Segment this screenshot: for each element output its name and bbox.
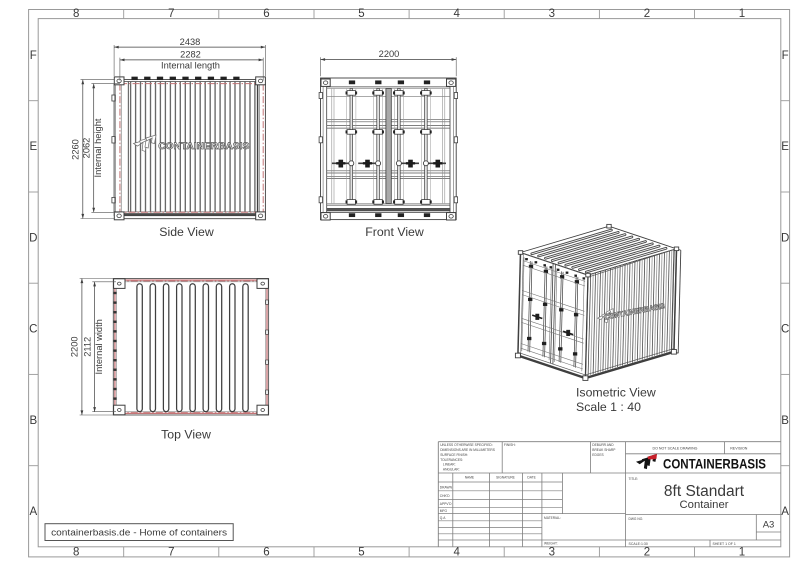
svg-text:Q.A: Q.A <box>440 516 446 520</box>
svg-text:ANGULAR:: ANGULAR: <box>440 467 459 471</box>
svg-text:MFG: MFG <box>440 509 448 513</box>
svg-text:5: 5 <box>358 8 364 20</box>
svg-text:4: 4 <box>453 8 460 20</box>
svg-text:2438: 2438 <box>180 37 201 47</box>
svg-text:D: D <box>29 233 37 245</box>
svg-text:F: F <box>782 50 789 62</box>
svg-text:F: F <box>30 50 37 62</box>
svg-text:D: D <box>781 233 789 245</box>
svg-text:2200: 2200 <box>70 336 80 357</box>
svg-text:WEIGHT:: WEIGHT: <box>544 541 558 545</box>
svg-text:2200: 2200 <box>379 49 400 59</box>
svg-text:3: 3 <box>549 547 555 559</box>
svg-text:1: 1 <box>739 547 745 559</box>
svg-text:8: 8 <box>73 8 79 20</box>
svg-text:Internal height: Internal height <box>93 118 103 177</box>
svg-text:5: 5 <box>358 547 364 559</box>
svg-text:2062: 2062 <box>81 138 91 159</box>
svg-text:E: E <box>29 141 37 153</box>
svg-text:8ft Standart: 8ft Standart <box>664 483 745 500</box>
svg-text:CONTAINERBASIS: CONTAINERBASIS <box>158 141 250 152</box>
svg-text:FINISH:: FINISH: <box>504 443 516 447</box>
svg-text:DO NOT SCALE DRAWING: DO NOT SCALE DRAWING <box>653 447 698 451</box>
svg-text:DRAWN: DRAWN <box>440 485 453 489</box>
svg-text:E: E <box>781 141 789 153</box>
svg-text:6: 6 <box>263 547 269 559</box>
svg-text:SCALE:1:30: SCALE:1:30 <box>629 542 648 546</box>
svg-text:3: 3 <box>549 8 555 20</box>
svg-text:1: 1 <box>739 8 745 20</box>
svg-text:2: 2 <box>644 8 650 20</box>
svg-text:8: 8 <box>73 547 79 559</box>
svg-text:Top View: Top View <box>161 428 211 442</box>
svg-text:A: A <box>781 506 789 518</box>
svg-text:2: 2 <box>644 547 650 559</box>
svg-text:TOLERANCES:: TOLERANCES: <box>440 458 463 462</box>
svg-text:containerbasis.de - Home of co: containerbasis.de - Home of containers <box>51 527 228 537</box>
svg-text:Scale 1 : 40: Scale 1 : 40 <box>576 400 641 414</box>
svg-text:Side View: Side View <box>159 225 214 239</box>
svg-text:NAME: NAME <box>465 476 475 480</box>
svg-text:LINEAR:: LINEAR: <box>440 463 455 467</box>
svg-text:UNLESS OTHERWISE SPECIFIED:: UNLESS OTHERWISE SPECIFIED: <box>440 443 493 447</box>
svg-text:7: 7 <box>168 8 174 20</box>
svg-text:REVISION: REVISION <box>730 447 748 451</box>
svg-text:APPV'D: APPV'D <box>440 502 452 506</box>
svg-text:CHK'D: CHK'D <box>440 494 450 498</box>
svg-text:DEBURR AND: DEBURR AND <box>592 443 614 447</box>
svg-text:A3: A3 <box>763 520 775 531</box>
svg-text:SURFACE FINISH:: SURFACE FINISH: <box>440 453 468 457</box>
svg-text:B: B <box>29 415 37 427</box>
svg-text:Front View: Front View <box>365 225 424 239</box>
svg-text:2260: 2260 <box>71 139 81 160</box>
svg-text:6: 6 <box>263 8 269 20</box>
svg-text:DIMENSIONS ARE IN MILLIMETERS: DIMENSIONS ARE IN MILLIMETERS <box>440 448 496 452</box>
svg-text:C: C <box>29 324 37 336</box>
svg-text:B: B <box>781 415 789 427</box>
svg-text:C: C <box>781 324 789 336</box>
svg-text:EDGES: EDGES <box>592 453 604 457</box>
svg-text:DWG NO.: DWG NO. <box>629 517 644 521</box>
svg-text:Internal width: Internal width <box>94 319 104 374</box>
svg-text:Internal length: Internal length <box>161 60 220 70</box>
svg-text:TITLE:: TITLE: <box>629 477 639 481</box>
svg-text:BREAK SHARP: BREAK SHARP <box>592 448 615 452</box>
svg-text:A: A <box>29 506 37 518</box>
svg-text:CONTAINERBASIS: CONTAINERBASIS <box>663 456 766 471</box>
svg-text:Container: Container <box>680 499 729 511</box>
svg-text:7: 7 <box>168 547 174 559</box>
svg-text:4: 4 <box>453 547 460 559</box>
svg-text:2282: 2282 <box>180 50 201 60</box>
svg-text:DATE: DATE <box>527 476 536 480</box>
svg-text:MATERIAL:: MATERIAL: <box>544 516 561 520</box>
svg-text:SIGNATURE: SIGNATURE <box>496 476 516 480</box>
svg-text:2112: 2112 <box>82 337 92 357</box>
svg-text:Isometric View: Isometric View <box>576 386 656 400</box>
svg-text:SHEET 1 OF 1: SHEET 1 OF 1 <box>713 542 736 546</box>
